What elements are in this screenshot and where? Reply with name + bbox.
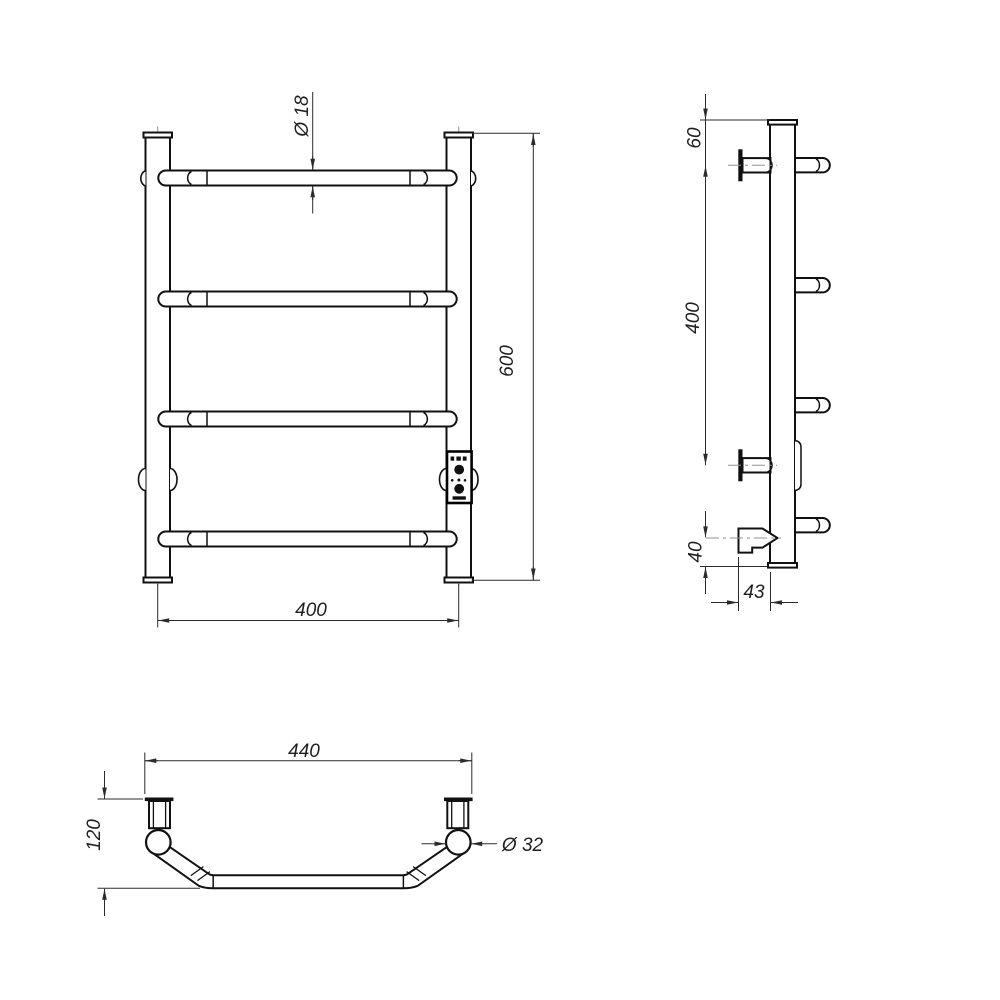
mount-right <box>444 798 473 855</box>
side-bottom-offset-label: 40 <box>686 541 707 563</box>
front-height-label: 600 <box>497 345 518 377</box>
left-post <box>146 134 171 579</box>
left-post-bottom-cap <box>144 578 173 583</box>
side-post <box>770 124 795 564</box>
side-depth-label: 43 <box>743 582 765 603</box>
rung-2 <box>158 292 456 307</box>
mount-left <box>145 798 174 855</box>
right-post-top-cap <box>445 133 474 138</box>
technical-drawing-canvas: Ø 18 600 400 <box>0 0 1000 1000</box>
right-post-bottom-cap <box>445 578 474 583</box>
rung-stub-3 <box>795 398 830 412</box>
rung-1 <box>158 171 456 186</box>
power-button-icon <box>454 465 464 475</box>
rung-stub-4 <box>795 518 830 532</box>
post-circle-left <box>146 830 171 855</box>
led-row-icon <box>451 457 455 461</box>
rung-3 <box>158 412 456 427</box>
front-diameter-label: Ø 18 <box>292 95 313 138</box>
mode-button-icon <box>454 484 464 494</box>
top-depth-label: 120 <box>84 819 105 851</box>
side-post-top-cap <box>768 120 797 125</box>
side-bracket-spacing-label: 400 <box>683 302 704 334</box>
dot-row-icon <box>451 479 454 482</box>
right-post <box>447 134 472 579</box>
top-width-label: 440 <box>288 741 320 762</box>
rung-stub-2 <box>795 278 830 292</box>
slot-icon <box>453 496 466 499</box>
front-width-label: 400 <box>295 600 327 621</box>
side-top-offset-label: 60 <box>685 127 706 149</box>
rung-4 <box>158 532 456 547</box>
control-panel-side-profile <box>795 441 801 491</box>
post-circle-right <box>446 830 471 855</box>
rung-stub-1 <box>795 158 830 172</box>
side-post-bottom-cap <box>768 563 797 568</box>
control-panel <box>447 452 472 504</box>
top-post-diameter-label: Ø 32 <box>501 835 544 856</box>
left-post-top-cap <box>144 133 173 138</box>
